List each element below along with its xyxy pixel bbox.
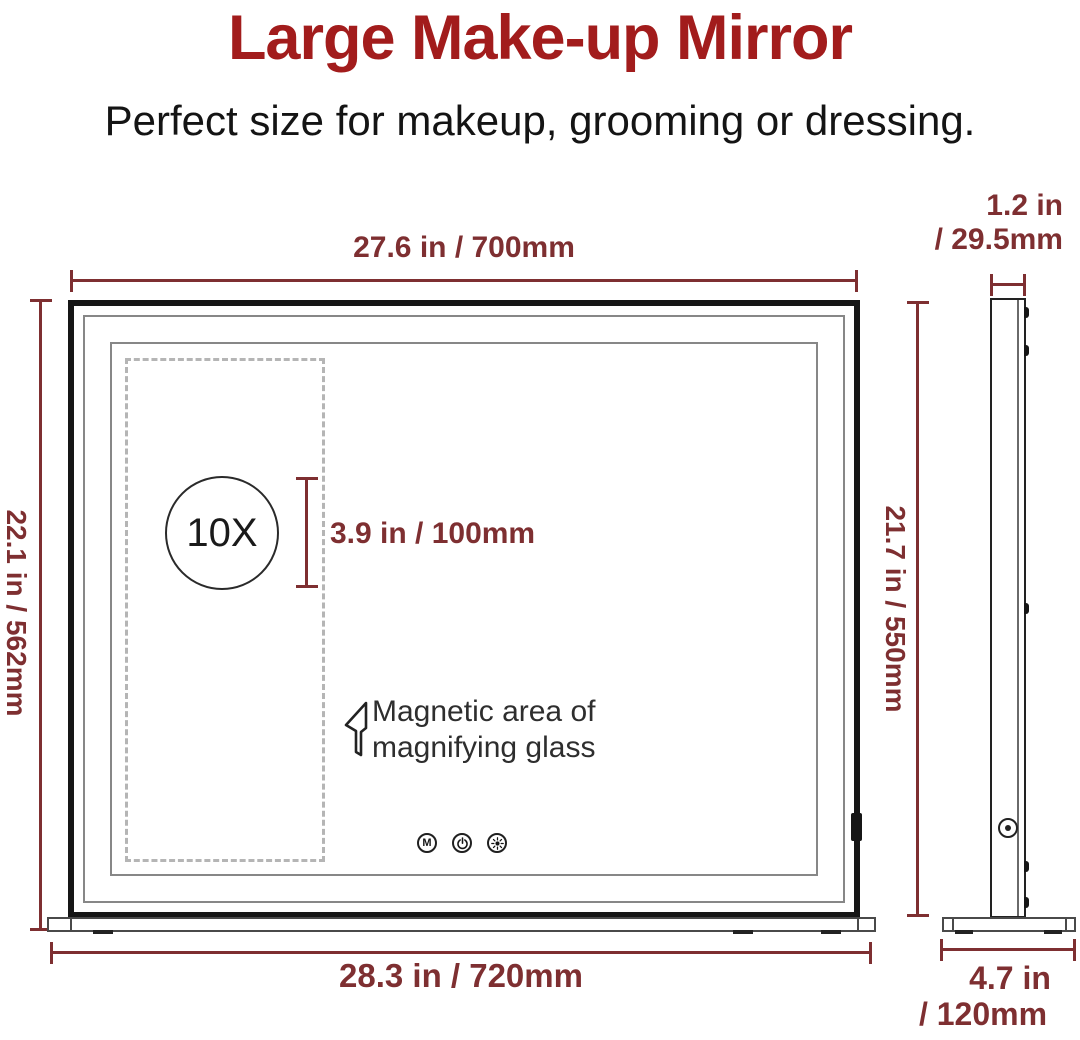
dim-line	[70, 279, 858, 282]
dim-line	[305, 477, 308, 588]
magnetic-area-note-line2: magnifying glass	[372, 730, 595, 766]
side-hinge-bump	[1024, 861, 1029, 872]
dim-line	[990, 283, 1026, 286]
front-width-dimension-line	[70, 270, 858, 292]
side-height-label: 21.7 in / 550mm	[881, 474, 911, 744]
dim-line	[940, 948, 1076, 951]
base-foot	[93, 930, 113, 934]
mode-button: M	[417, 833, 437, 853]
side-depth-label-line1: 1.2 in	[935, 189, 1063, 223]
dim-tick	[1073, 939, 1076, 961]
magnetic-area-note: Magnetic area of magnifying glass	[372, 694, 595, 766]
side-power-knob-dot	[1005, 825, 1011, 831]
dim-tick	[907, 301, 929, 304]
dim-tick	[296, 477, 318, 480]
side-hinge-bump	[1024, 897, 1029, 908]
power-button	[452, 833, 472, 853]
side-base-depth-dimension-line	[940, 939, 1076, 961]
product-dimension-diagram: Large Make-up Mirror Perfect size for ma…	[0, 0, 1080, 1040]
dim-tick	[990, 274, 993, 296]
magnifier-height-label: 3.9 in / 100mm	[330, 517, 535, 551]
base-foot	[733, 930, 753, 934]
dim-line	[39, 299, 42, 931]
mirror-base-front	[47, 917, 876, 932]
light-button	[487, 833, 507, 853]
front-height-label: 22.1 in / 562mm	[2, 478, 32, 748]
side-base-depth-label-line2: / 120mm	[908, 996, 1058, 1033]
dim-tick	[1023, 274, 1026, 296]
magnifier-label: 10X	[186, 511, 257, 556]
magnifier-10x-circle: 10X	[165, 476, 279, 590]
mirror-side-view	[990, 298, 1026, 918]
dim-tick	[869, 942, 872, 964]
power-icon	[456, 837, 469, 850]
light-icon	[491, 837, 504, 850]
base-cap-line	[70, 919, 72, 930]
side-hinge-bump	[1024, 307, 1029, 318]
side-depth-dimension-line	[990, 274, 1026, 296]
front-width-label: 27.6 in / 700mm	[214, 231, 714, 265]
dim-line	[50, 951, 872, 954]
magnifier-height-dimension-line	[296, 477, 318, 588]
dim-tick	[30, 299, 52, 302]
front-base-width-label: 28.3 in / 720mm	[211, 957, 711, 995]
dim-tick	[296, 585, 318, 588]
dim-tick	[50, 942, 53, 964]
base-cap-line	[857, 919, 859, 930]
mode-button-label: M	[422, 837, 431, 849]
magnetic-area-outline	[125, 358, 325, 862]
mirror-side-knob	[851, 813, 862, 841]
side-hinge-bump	[1024, 603, 1029, 614]
magnetic-area-note-line1: Magnetic area of	[372, 694, 595, 730]
base-foot	[821, 930, 841, 934]
touch-controls: M	[417, 833, 507, 853]
side-hinge-bump	[1024, 345, 1029, 356]
mirror-base-side	[942, 917, 1076, 932]
base-foot	[1044, 930, 1062, 934]
base-foot	[955, 930, 973, 934]
mirror-front-view: 10X 3.9 in / 100mm Magnetic area of magn…	[68, 300, 860, 918]
dim-tick	[907, 914, 929, 917]
left-arrow-icon	[343, 700, 369, 760]
page-title: Large Make-up Mirror	[0, 2, 1080, 74]
side-power-knob	[998, 818, 1018, 838]
dim-tick	[70, 270, 73, 292]
side-depth-label-line2: / 29.5mm	[935, 223, 1063, 257]
page-subtitle: Perfect size for makeup, grooming or dre…	[0, 97, 1080, 145]
side-base-depth-label-line1: 4.7 in	[935, 960, 1080, 997]
dim-tick	[855, 270, 858, 292]
side-depth-label: 1.2 in / 29.5mm	[935, 189, 1063, 257]
base-cap-line	[952, 919, 954, 930]
front-height-dimension-line	[30, 299, 52, 931]
dim-tick	[940, 939, 943, 961]
dim-line	[916, 301, 919, 917]
base-cap-line	[1065, 919, 1067, 930]
